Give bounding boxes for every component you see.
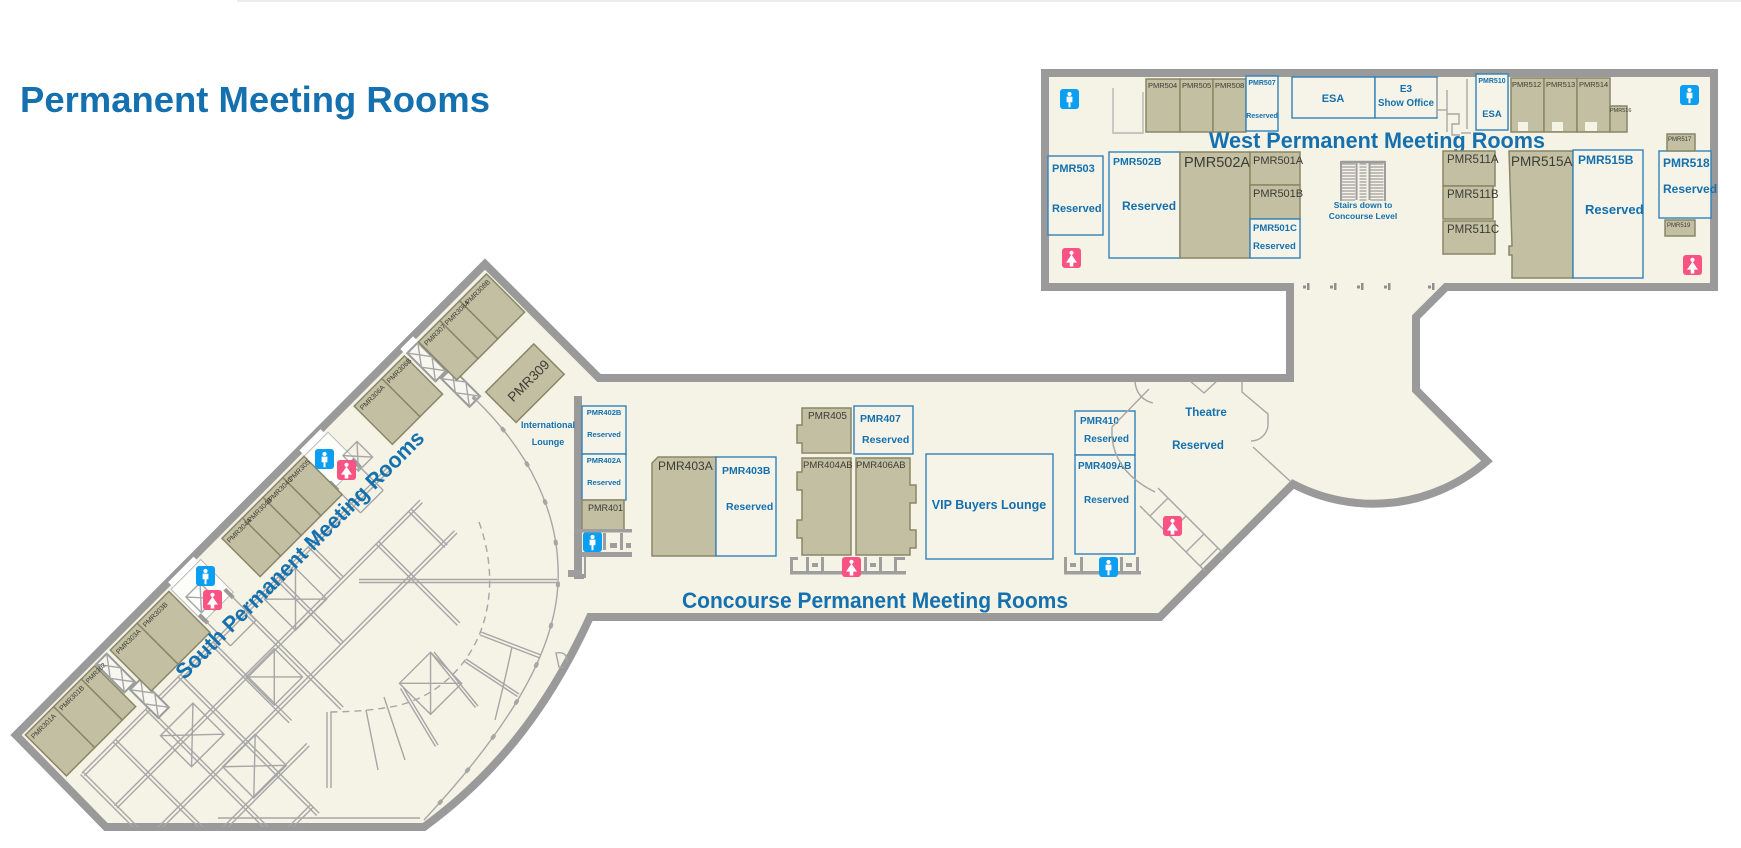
svg-text:PMR404AB: PMR404AB <box>803 460 853 471</box>
svg-text:PMR403A: PMR403A <box>658 459 713 473</box>
svg-text:Reserved: Reserved <box>1585 202 1644 217</box>
svg-text:PMR501A: PMR501A <box>1253 155 1304 167</box>
svg-text:Reserved: Reserved <box>1084 434 1129 445</box>
svg-text:PMR503: PMR503 <box>1052 163 1095 175</box>
svg-text:Reserved: Reserved <box>587 430 621 439</box>
svg-text:Reserved: Reserved <box>1246 113 1278 120</box>
svg-text:West Permanent Meeting Rooms: West Permanent Meeting Rooms <box>1209 128 1545 153</box>
svg-text:PMR402A: PMR402A <box>587 456 622 465</box>
svg-text:PMR512: PMR512 <box>1512 80 1541 89</box>
svg-text:Reserved: Reserved <box>587 478 621 487</box>
svg-text:PMR504: PMR504 <box>1148 81 1177 90</box>
svg-text:PMR519: PMR519 <box>1667 223 1691 229</box>
svg-text:PMR501C: PMR501C <box>1253 223 1297 234</box>
svg-text:PMR401: PMR401 <box>588 503 623 513</box>
svg-text:VIP Buyers Lounge: VIP Buyers Lounge <box>932 498 1046 512</box>
svg-text:PMR514: PMR514 <box>1579 80 1608 89</box>
svg-text:Reserved: Reserved <box>1122 199 1176 213</box>
svg-text:PMR501B: PMR501B <box>1253 188 1303 200</box>
svg-text:Show Office: Show Office <box>1378 98 1434 109</box>
svg-text:PMR516: PMR516 <box>1610 108 1631 114</box>
svg-text:Reserved: Reserved <box>1663 182 1717 196</box>
svg-text:PMR507: PMR507 <box>1248 80 1275 87</box>
svg-text:Reserved: Reserved <box>862 434 909 446</box>
svg-text:PMR407: PMR407 <box>860 413 901 425</box>
svg-text:PMR505: PMR505 <box>1182 81 1211 90</box>
svg-text:ESA: ESA <box>1322 93 1345 105</box>
svg-text:E3: E3 <box>1400 84 1413 95</box>
svg-text:PMR405: PMR405 <box>808 411 847 422</box>
svg-text:PMR518: PMR518 <box>1663 156 1710 170</box>
svg-text:ESA: ESA <box>1482 109 1502 120</box>
svg-text:Reserved: Reserved <box>1253 241 1296 252</box>
svg-text:PMR515A: PMR515A <box>1511 154 1573 169</box>
svg-text:Permanent Meeting Rooms: Permanent Meeting Rooms <box>20 79 490 120</box>
svg-text:PMR403B: PMR403B <box>722 465 771 477</box>
svg-text:PMR515B: PMR515B <box>1578 153 1634 167</box>
svg-text:PMR502B: PMR502B <box>1113 156 1162 168</box>
svg-text:PMR406AB: PMR406AB <box>856 460 906 471</box>
svg-text:International: International <box>521 420 575 430</box>
svg-text:PMR511C: PMR511C <box>1447 224 1499 236</box>
svg-text:Reserved: Reserved <box>1084 495 1129 506</box>
svg-text:PMR511B: PMR511B <box>1447 189 1499 201</box>
svg-text:Reserved: Reserved <box>1052 203 1102 215</box>
svg-text:PMR513: PMR513 <box>1546 80 1575 89</box>
svg-text:Reserved: Reserved <box>1172 440 1224 452</box>
svg-text:Concourse Level: Concourse Level <box>1329 211 1398 221</box>
svg-text:Stairs down to: Stairs down to <box>1334 200 1393 210</box>
svg-text:PMR511A: PMR511A <box>1447 154 1499 166</box>
svg-text:PMR510: PMR510 <box>1478 78 1505 85</box>
svg-text:PMR402B: PMR402B <box>587 408 622 417</box>
svg-text:PMR508: PMR508 <box>1215 81 1244 90</box>
svg-text:Lounge: Lounge <box>532 437 565 447</box>
svg-text:Reserved: Reserved <box>726 501 773 513</box>
svg-text:Concourse Permanent Meeting Ro: Concourse Permanent Meeting Rooms <box>682 588 1068 613</box>
svg-text:PMR502A: PMR502A <box>1184 155 1250 171</box>
svg-text:Theatre: Theatre <box>1185 407 1227 419</box>
svg-text:PMR517: PMR517 <box>1668 137 1692 143</box>
